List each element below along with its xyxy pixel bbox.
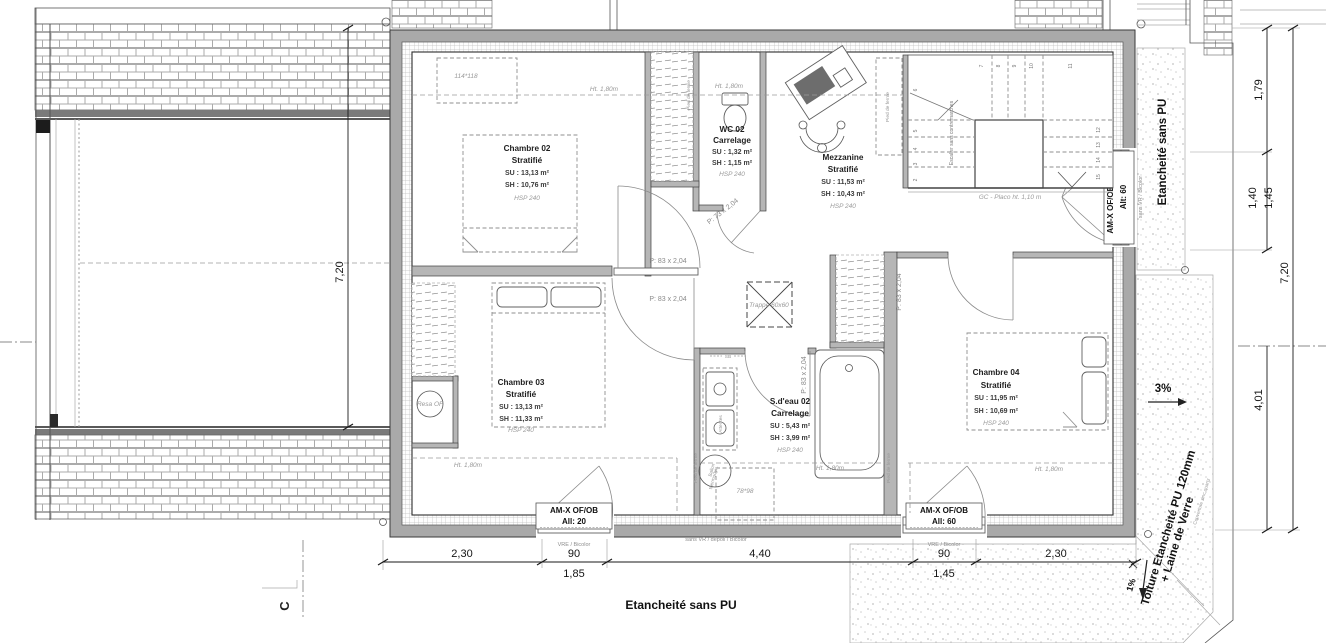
closet-top bbox=[651, 52, 693, 181]
desk bbox=[785, 46, 866, 120]
svg-text:HSP 240: HSP 240 bbox=[777, 447, 803, 454]
svg-text:Pied de ferme: Pied de ferme bbox=[693, 453, 699, 483]
roof-window-114 bbox=[437, 58, 517, 103]
svg-text:Ht. 1,80m: Ht. 1,80m bbox=[590, 86, 619, 93]
svg-text:SH : 10,76 m²: SH : 10,76 m² bbox=[505, 182, 550, 189]
floor-plan-drawing: 7,20 C Etancheité sans PU 3% Toiture Eta… bbox=[0, 0, 1326, 643]
svg-text:SH : 10,69 m²: SH : 10,69 m² bbox=[974, 408, 1019, 415]
post-top bbox=[36, 120, 50, 133]
svg-text:Stratifié: Stratifié bbox=[981, 381, 1012, 390]
svg-text:8: 8 bbox=[996, 64, 1002, 67]
slope-3-label: 3% bbox=[1155, 383, 1172, 395]
svg-text:5: 5 bbox=[913, 129, 919, 132]
vanity: Attentes bbox=[703, 368, 737, 450]
svg-text:WC 02: WC 02 bbox=[719, 125, 744, 134]
svg-text:1,85: 1,85 bbox=[563, 568, 584, 580]
door-label-bath: P: 83 x 2,04 bbox=[801, 356, 808, 393]
svg-text:Stratifié: Stratifié bbox=[506, 390, 537, 399]
door-label-wc: P: 73 x 2,04 bbox=[706, 197, 740, 226]
stair-note: Escalier sans contremarches bbox=[949, 100, 955, 165]
terrace-stipple bbox=[850, 275, 1213, 643]
svg-text:13: 13 bbox=[1096, 142, 1102, 148]
svg-text:Carrelage: Carrelage bbox=[771, 409, 809, 418]
svg-text:S.d'eau 02: S.d'eau 02 bbox=[770, 397, 811, 406]
room-label-chambre-02: Chambre 02 Stratifié SU : 13,13 m² SH : … bbox=[504, 144, 551, 202]
svg-text:1,45: 1,45 bbox=[1263, 187, 1275, 208]
svg-text:SU : 13,13 m²: SU : 13,13 m² bbox=[499, 404, 544, 411]
svg-text:Trappe 60x60: Trappe 60x60 bbox=[749, 302, 789, 309]
svg-text:Pied de ferme: Pied de ferme bbox=[886, 453, 892, 483]
neighbour-wall bbox=[1204, 0, 1232, 55]
svg-text:SH : 10,43 m²: SH : 10,43 m² bbox=[821, 191, 866, 198]
svg-text:4: 4 bbox=[913, 147, 919, 150]
slab-edge-bottom bbox=[35, 429, 390, 435]
section-label-c: C bbox=[277, 601, 292, 611]
room-label-wc-02: WC 02 Carrelage SU : 1,32 m² SH : 1,15 m… bbox=[712, 125, 753, 178]
room-label-chambre-03: Chambre 03 Stratifié SU : 13,13 m² SH : … bbox=[498, 378, 545, 434]
svg-text:Stratifié: Stratifié bbox=[828, 165, 859, 174]
glazing-note: sans VR / dépoli / Bicolor bbox=[685, 537, 747, 543]
svg-text:sans VR / Bicolor: sans VR / Bicolor bbox=[1138, 176, 1144, 218]
svg-text:Alt: 60: Alt: 60 bbox=[1119, 184, 1128, 209]
sb-note: SB bbox=[710, 354, 746, 360]
bathtub bbox=[815, 350, 884, 478]
etancheite-right-label: Etancheité sans PU bbox=[1157, 99, 1169, 206]
trappe: Trappe 60x60 bbox=[747, 282, 792, 327]
joint-marker bbox=[1137, 20, 1145, 28]
svg-text:HSP 240: HSP 240 bbox=[514, 195, 540, 202]
room-label-chambre-04: Chambre 04 Stratifié SU : 11,95 m² SH : … bbox=[973, 368, 1020, 427]
doors-group: P: 83 x 2,04 P: 83 x 2,04 P: 73 x 2,04 P… bbox=[612, 186, 1013, 416]
svg-text:1,79: 1,79 bbox=[1253, 79, 1265, 100]
water-heater: Ballon thermodyn. bbox=[699, 455, 731, 490]
joint-marker bbox=[380, 519, 387, 526]
post-bottom bbox=[50, 414, 58, 427]
svg-text:SH : 1,15 m²: SH : 1,15 m² bbox=[712, 160, 753, 167]
window-w60: AM-X OF/OB All: 60 VRE / Bicolor bbox=[901, 466, 987, 548]
svg-text:SU : 11,95 m²: SU : 11,95 m² bbox=[974, 395, 1018, 402]
svg-text:Resa OF: Resa OF bbox=[417, 401, 444, 408]
svg-text:SB: SB bbox=[725, 354, 731, 360]
svg-text:15: 15 bbox=[1096, 174, 1102, 180]
svg-text:SU : 1,32 m²: SU : 1,32 m² bbox=[712, 149, 753, 156]
svg-text:Ht. 1,80m: Ht. 1,80m bbox=[715, 83, 744, 90]
closet-chambre03 bbox=[412, 283, 455, 376]
svg-text:AM-X OF/OB: AM-X OF/OB bbox=[920, 506, 968, 515]
balcony-rails bbox=[1137, 4, 1190, 25]
room-label-mezzanine: Mezzanine Stratifié SU : 11,53 m² SH : 1… bbox=[821, 153, 866, 210]
svg-text:90: 90 bbox=[938, 548, 950, 560]
svg-text:HSP 240: HSP 240 bbox=[719, 171, 745, 178]
svg-text:7,20: 7,20 bbox=[1279, 262, 1291, 283]
svg-text:12: 12 bbox=[1096, 127, 1102, 133]
svg-text:SH : 11,33 m²: SH : 11,33 m² bbox=[499, 416, 543, 423]
svg-text:3: 3 bbox=[913, 162, 919, 165]
section-offset bbox=[262, 580, 297, 588]
svg-text:All: 60: All: 60 bbox=[932, 517, 957, 526]
svg-text:Pied de ferme: Pied de ferme bbox=[885, 92, 891, 122]
svg-text:Chambre 03: Chambre 03 bbox=[498, 378, 545, 387]
svg-text:SU : 5,43 m²: SU : 5,43 m² bbox=[770, 423, 811, 430]
etancheite-bottom-label: Etancheité sans PU bbox=[625, 598, 736, 612]
svg-text:HSP 240: HSP 240 bbox=[830, 203, 856, 210]
svg-text:SU : 13,13 m²: SU : 13,13 m² bbox=[505, 170, 550, 177]
svg-text:1,45: 1,45 bbox=[933, 568, 954, 580]
floor-plan-sheet: 7,20 C Etancheité sans PU 3% Toiture Eta… bbox=[0, 0, 1326, 643]
chair bbox=[799, 121, 845, 153]
svg-text:Ht. 1,80m: Ht. 1,80m bbox=[454, 462, 483, 469]
gc-placo-note: GC - Placo ht. 1,10 m bbox=[979, 194, 1042, 201]
brick-wall-bottom bbox=[35, 435, 390, 519]
svg-text:2,30: 2,30 bbox=[451, 548, 472, 560]
svg-text:All: 20: All: 20 bbox=[562, 517, 587, 526]
svg-text:2: 2 bbox=[913, 178, 919, 181]
svg-text:HSP 240: HSP 240 bbox=[508, 427, 534, 434]
svg-text:90: 90 bbox=[568, 548, 580, 560]
slab-edge-top bbox=[35, 110, 390, 117]
svg-text:7,20: 7,20 bbox=[334, 261, 346, 282]
brick-top-left bbox=[392, 0, 492, 28]
staircase: 2 3 4 5 6 7 8 9 10 11 12 13 14 15 Escali… bbox=[908, 55, 1113, 201]
stair-void bbox=[975, 120, 1043, 188]
closet-hall bbox=[836, 255, 884, 342]
brick-wall-top bbox=[35, 24, 390, 110]
svg-text:SH : 3,99 m²: SH : 3,99 m² bbox=[770, 435, 811, 442]
resa-room: Resa OF bbox=[417, 391, 444, 417]
svg-text:Ht. 1,80m: Ht. 1,80m bbox=[1035, 466, 1064, 473]
svg-text:4,01: 4,01 bbox=[1253, 389, 1265, 410]
svg-text:6: 6 bbox=[913, 88, 919, 91]
svg-text:7: 7 bbox=[979, 64, 985, 67]
svg-text:Chambre 04: Chambre 04 bbox=[973, 368, 1020, 377]
edge-lines bbox=[1240, 10, 1326, 24]
svg-text:HSP 240: HSP 240 bbox=[983, 420, 1009, 427]
svg-text:10: 10 bbox=[1029, 63, 1035, 69]
svg-text:4,40: 4,40 bbox=[749, 548, 770, 560]
svg-text:AM-X OF/OB: AM-X OF/OB bbox=[550, 506, 598, 515]
hall-door-frame bbox=[614, 268, 698, 275]
svg-text:SU : 11,53 m²: SU : 11,53 m² bbox=[821, 179, 865, 186]
svg-text:114*118: 114*118 bbox=[454, 73, 478, 80]
door-label-hall-upper: P: 83 x 2,04 bbox=[649, 258, 686, 265]
svg-text:Attentes: Attentes bbox=[718, 415, 724, 433]
door-label-hall-lower: P: 83 x 2,04 bbox=[649, 296, 686, 303]
door-label-ch04: P: 83 x 2,04 bbox=[896, 273, 903, 310]
svg-text:1,40: 1,40 bbox=[1247, 187, 1259, 208]
brick-top-right bbox=[1015, 0, 1102, 28]
room-label-sdeau-02: S.d'eau 02 Carrelage SU : 5,43 m² SH : 3… bbox=[770, 397, 811, 454]
svg-text:Mezzanine: Mezzanine bbox=[823, 153, 864, 162]
svg-text:Chambre 02: Chambre 02 bbox=[504, 144, 551, 153]
svg-text:Carrelage: Carrelage bbox=[713, 136, 751, 145]
parapet-band bbox=[35, 8, 390, 24]
window-w20: AM-X OF/OB All: 20 VRE / Bicolor bbox=[536, 466, 614, 548]
svg-text:78*98: 78*98 bbox=[737, 488, 754, 495]
svg-text:9: 9 bbox=[1012, 64, 1018, 67]
adjacent-building-section: 7,20 C bbox=[0, 8, 390, 618]
svg-text:Ht. 1,80m: Ht. 1,80m bbox=[816, 465, 845, 472]
svg-text:14: 14 bbox=[1096, 157, 1102, 163]
svg-text:11: 11 bbox=[1068, 63, 1074, 68]
svg-text:Stratifié: Stratifié bbox=[512, 156, 543, 165]
svg-text:2,30: 2,30 bbox=[1045, 548, 1066, 560]
